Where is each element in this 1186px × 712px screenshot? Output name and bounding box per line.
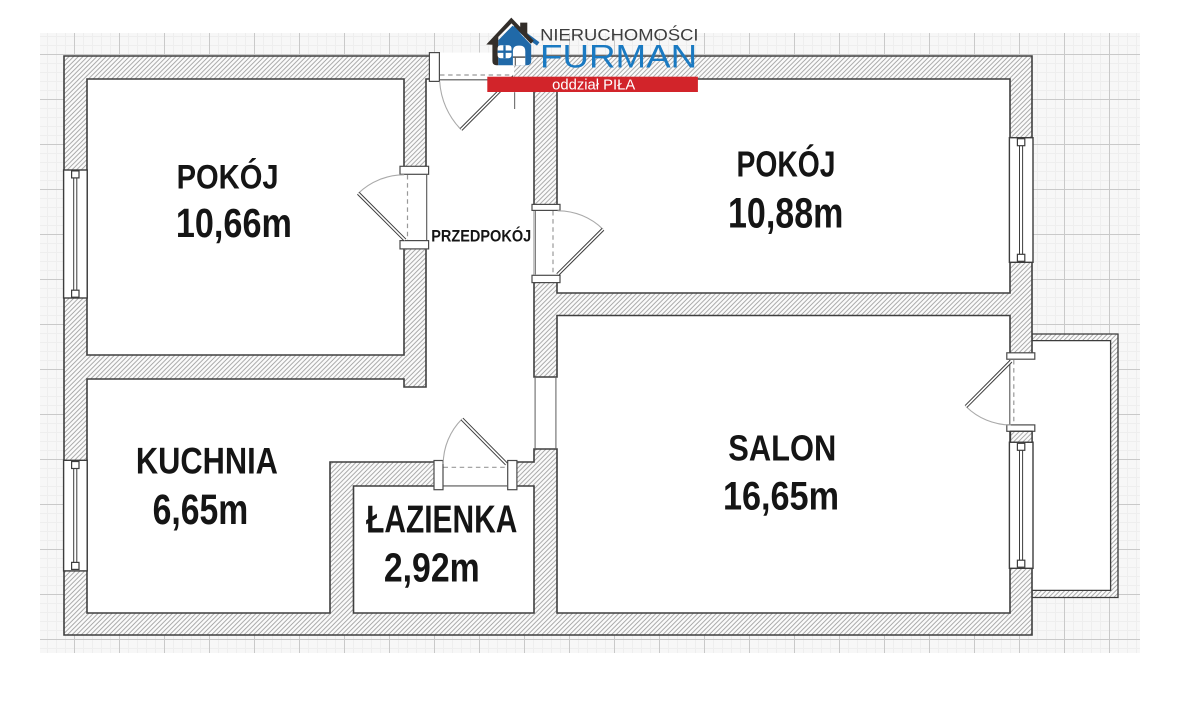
svg-text:10,88m: 10,88m <box>728 191 843 238</box>
svg-text:FURMAN: FURMAN <box>540 38 697 74</box>
svg-text:16,65m: 16,65m <box>723 474 839 518</box>
svg-text:oddział PIŁA: oddział PIŁA <box>552 78 635 94</box>
svg-text:SALON: SALON <box>728 428 836 469</box>
svg-text:10,66m: 10,66m <box>176 200 292 246</box>
svg-text:PRZEDPOKÓJ: PRZEDPOKÓJ <box>431 227 531 246</box>
svg-text:KUCHNIA: KUCHNIA <box>136 440 278 482</box>
svg-text:POKÓJ: POKÓJ <box>177 157 279 197</box>
svg-text:2,92m: 2,92m <box>384 544 480 590</box>
svg-text:POKÓJ: POKÓJ <box>737 143 836 185</box>
svg-text:6,65m: 6,65m <box>153 486 249 534</box>
svg-text:ŁAZIENKA: ŁAZIENKA <box>366 499 517 542</box>
